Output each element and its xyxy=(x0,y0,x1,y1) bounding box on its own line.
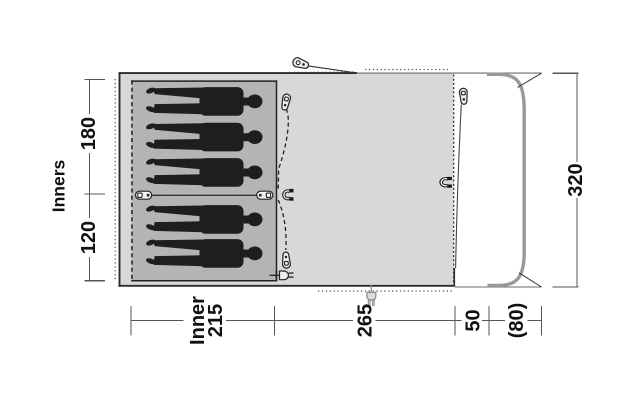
svg-text:180: 180 xyxy=(78,117,100,150)
svg-text:265: 265 xyxy=(355,304,377,337)
svg-text:(80): (80) xyxy=(506,303,528,339)
svg-text:320: 320 xyxy=(565,163,587,196)
svg-text:120: 120 xyxy=(78,221,100,254)
svg-text:50: 50 xyxy=(463,309,485,331)
svg-text:Inners: Inners xyxy=(49,159,69,212)
svg-text:Inner215: Inner215 xyxy=(187,296,227,345)
